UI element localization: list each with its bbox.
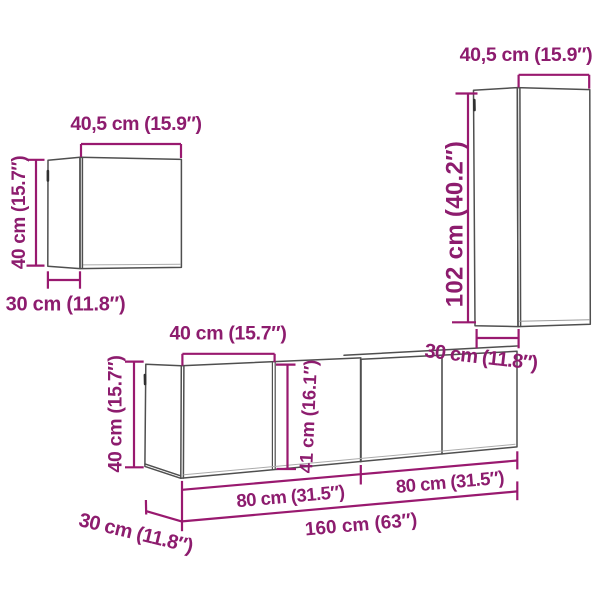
svg-text:40 cm (15.7″): 40 cm (15.7″) bbox=[9, 156, 30, 269]
svg-text:40,5 cm (15.9″): 40,5 cm (15.9″) bbox=[460, 44, 593, 66]
svg-text:102 cm (40.2″): 102 cm (40.2″) bbox=[442, 141, 469, 307]
svg-text:40 cm (15.7″): 40 cm (15.7″) bbox=[169, 323, 286, 345]
svg-text:40 cm (15.7″): 40 cm (15.7″) bbox=[105, 355, 127, 472]
svg-text:30 cm (11.8″): 30 cm (11.8″) bbox=[6, 294, 126, 316]
svg-text:40,5 cm (15.9″): 40,5 cm (15.9″) bbox=[70, 113, 201, 135]
